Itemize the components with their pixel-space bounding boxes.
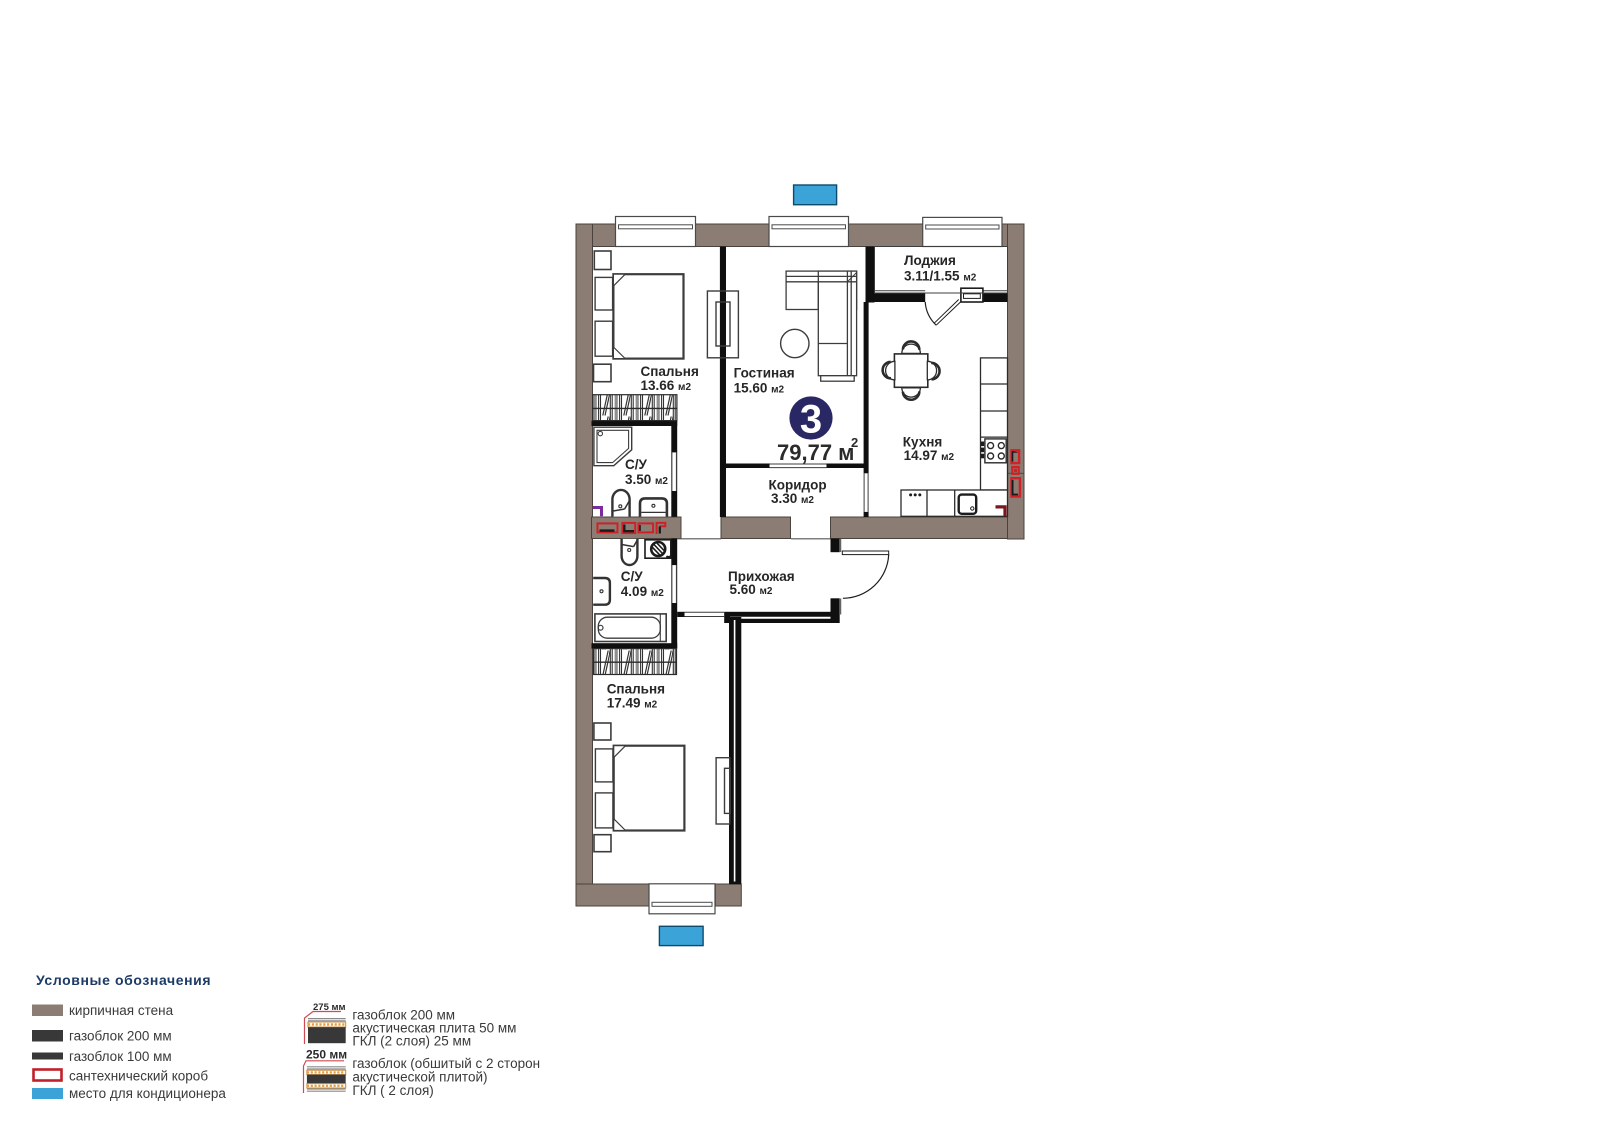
svg-text:Спальня: Спальня (641, 364, 699, 379)
svg-text:ГКЛ ( 2 слоя): ГКЛ ( 2 слоя) (352, 1083, 433, 1098)
svg-text:Лоджия: Лоджия (904, 253, 956, 268)
svg-text:сантехнический короб: сантехнический короб (69, 1069, 208, 1084)
svg-text:79,77 м: 79,77 м (777, 440, 854, 465)
svg-text:250 мм: 250 мм (306, 1048, 347, 1062)
svg-text:Гостиная: Гостиная (734, 366, 795, 381)
svg-text:кирпичная стена: кирпичная стена (69, 1003, 174, 1018)
svg-text:С/У: С/У (625, 457, 648, 472)
svg-text:3: 3 (800, 398, 822, 442)
svg-text:2: 2 (851, 435, 858, 450)
svg-text:газоблок 200 мм: газоблок 200 мм (69, 1029, 172, 1044)
svg-text:Условные обозначения: Условные обозначения (36, 972, 211, 988)
svg-text:газоблок 100 мм: газоблок 100 мм (69, 1049, 172, 1064)
svg-text:С/У: С/У (621, 569, 644, 584)
svg-text:ГКЛ (2 слоя) 25 мм: ГКЛ (2 слоя) 25 мм (352, 1034, 471, 1049)
svg-text:место для кондиционера: место для кондиционера (69, 1086, 226, 1101)
svg-text:Спальня: Спальня (607, 682, 665, 697)
